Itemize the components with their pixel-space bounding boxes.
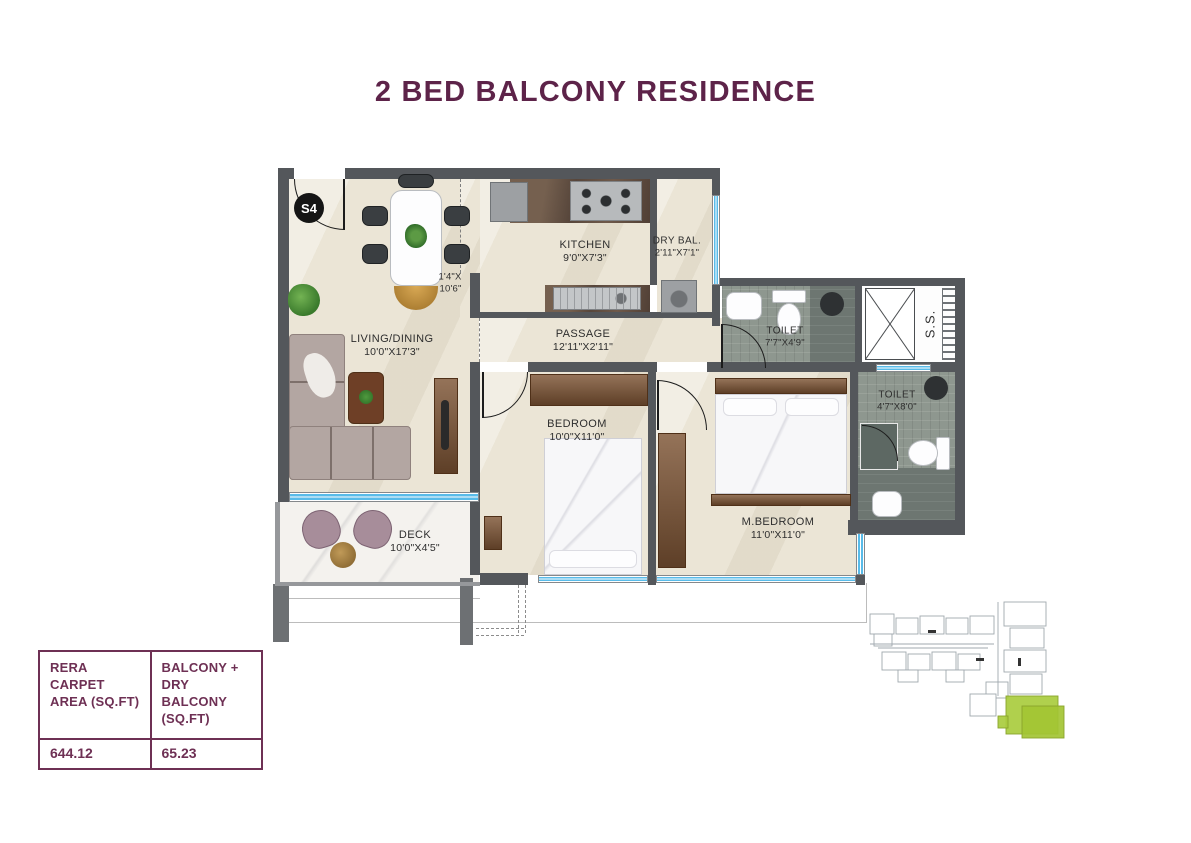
kitchen-label: KITCHEN 9'0"X7'3" [559, 238, 610, 266]
bedroom-door-leaf [482, 372, 484, 418]
plant-icon [288, 284, 320, 316]
wc-bowl [908, 440, 938, 466]
rera-carpet-area-value: 644.12 [39, 739, 151, 769]
shower-head [924, 376, 948, 400]
wall [648, 372, 656, 575]
master-bedroom-window [656, 575, 856, 583]
projection-line [280, 598, 480, 599]
bedside-table [484, 516, 502, 550]
tv-screen [441, 400, 449, 450]
wall [855, 286, 862, 368]
rera-carpet-area-header: RERA CARPET AREA (SQ.FT) [39, 651, 151, 739]
bed-pillow [785, 398, 839, 416]
washbasin [872, 491, 902, 517]
kitchen-sink [553, 287, 641, 310]
wall [648, 573, 656, 585]
wall [470, 362, 480, 575]
washing-machine [661, 280, 697, 313]
wall [712, 285, 720, 326]
deck-table [330, 542, 356, 568]
hatch-detail [518, 585, 526, 633]
wall [850, 372, 858, 520]
entrance-door-leaf [343, 179, 345, 230]
deck-wall [278, 582, 480, 586]
master-bedroom-door-leaf [657, 380, 659, 430]
dining-bench [398, 174, 434, 188]
wardrobe [658, 433, 686, 568]
kitchen-appliance [490, 182, 528, 222]
dining-chair [444, 244, 470, 264]
wall [278, 168, 289, 502]
dry-balcony-label: DRY BAL. 2'11"X7'1" [653, 234, 701, 259]
bedroom-label: BEDROOM 10'0"X11'0" [547, 417, 607, 445]
wall [712, 168, 720, 195]
hatch-detail [476, 628, 524, 636]
bed-pillow [549, 550, 637, 568]
shaft-cross-box [865, 288, 915, 360]
bed-footboard [711, 494, 851, 506]
shower-head [820, 292, 844, 316]
shaft-hatch [942, 288, 955, 360]
table-header-row: RERA CARPET AREA (SQ.FT) BALCONY + DRY B… [39, 651, 262, 739]
bed-pillow [723, 398, 777, 416]
projection-line [280, 622, 866, 623]
balcony-area-value: 65.23 [151, 739, 263, 769]
wall [528, 362, 657, 372]
dining-chair [362, 244, 388, 264]
service-shaft-label: S.S. [923, 310, 938, 339]
dining-chair [444, 206, 470, 226]
coffee-table-plate [359, 390, 373, 404]
table-value-row: 644.12 65.23 [39, 739, 262, 769]
unit-number-badge: S4 [294, 193, 324, 223]
stove-hob [570, 181, 642, 221]
wc-tank [936, 437, 950, 470]
toilet-master-window [876, 364, 931, 372]
deck-sliding-window [289, 492, 479, 502]
dining-chair [362, 206, 388, 226]
washbasin [726, 292, 762, 320]
foyer-label: 1'4"X 10'6" [438, 272, 461, 297]
deck-wall [275, 502, 280, 586]
page-title: 2 BED BALCONY RESIDENCE [0, 76, 1191, 109]
master-bedroom-label: M.BEDROOM 11'0"X11'0" [742, 515, 815, 543]
wc-tank [772, 290, 806, 303]
bed-headboard [715, 378, 847, 394]
wall [715, 278, 965, 286]
toilet-master-label: TOILET 4'7"X8'0" [877, 388, 917, 413]
floor-plan: S4 [278, 168, 966, 646]
wall-stub [460, 578, 473, 645]
wall [480, 573, 528, 585]
key-plan-highlight [998, 696, 1064, 738]
passage-label: PASSAGE 12'11"X2'11" [553, 327, 613, 355]
key-plan [858, 596, 1073, 748]
passage-dashed-line [479, 318, 481, 362]
bedroom-window [538, 575, 648, 583]
toilet-common-door-leaf [721, 324, 723, 368]
wall [955, 278, 965, 535]
wardrobe [530, 374, 648, 406]
toilet-common-label: TOILET 7'7"X4'9" [765, 324, 805, 349]
dry-balcony-window [712, 195, 720, 285]
wall-stub [273, 584, 289, 642]
master-bedroom-side-window [856, 533, 865, 575]
wall [470, 273, 480, 318]
wall [650, 179, 657, 285]
wall [848, 520, 965, 535]
table-plant [405, 224, 427, 248]
area-table: RERA CARPET AREA (SQ.FT) BALCONY + DRY B… [38, 650, 263, 770]
living-label: LIVING/DINING 10'0"X17'3" [351, 332, 434, 360]
balcony-area-header: BALCONY + DRY BALCONY (SQ.FT) [151, 651, 263, 739]
floor-plan-page: 2 BED BALCONY RESIDENCE [0, 0, 1191, 843]
deck-label: DECK 10'0"X4'5" [390, 528, 440, 556]
sofa-horizontal [289, 426, 411, 480]
